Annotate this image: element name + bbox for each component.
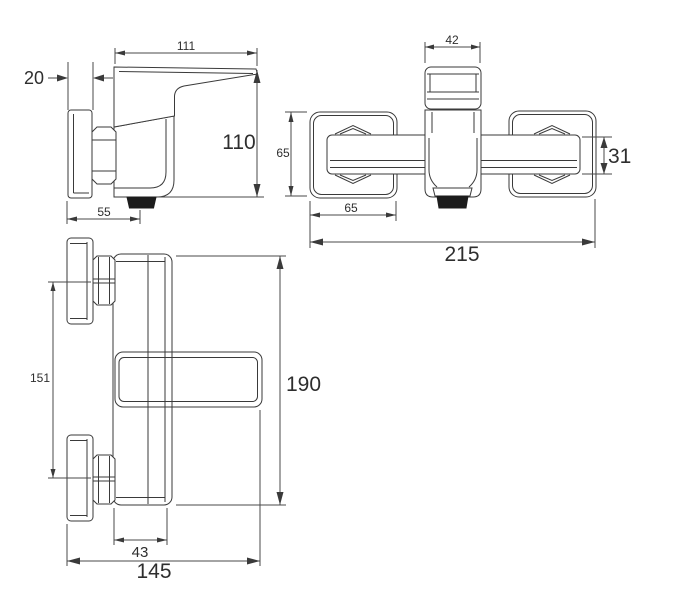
left-cone-lower	[335, 175, 371, 184]
dim-front-total-width-label: 215	[444, 243, 479, 266]
dim-front-escutcheon-height: 65	[276, 112, 307, 196]
side-hex-nut	[92, 127, 116, 184]
dim-plan-connection-spacing: 151	[30, 282, 91, 478]
front-outlet-collar	[433, 188, 472, 196]
dim-side-top-width-label: 111	[177, 39, 196, 53]
dim-front-escutcheon-width: 65	[310, 201, 396, 221]
dim-plan-total-length-label: 190	[286, 373, 321, 396]
dim-plan-body-width: 43	[114, 508, 167, 561]
mixer-dimensional-drawing: 111 20 110 55	[0, 0, 682, 600]
dim-side-plate-thickness-label: 20	[24, 68, 44, 88]
side-outlet-spout	[127, 197, 156, 208]
dim-side-base-depth-label: 55	[97, 205, 111, 219]
dim-plan-body-width-label: 43	[132, 544, 149, 561]
left-cone-upper	[335, 126, 371, 135]
dim-plan-connection-spacing-label: 151	[30, 371, 50, 385]
dim-plan-total-length: 190	[176, 256, 321, 505]
side-view: 111 20 110 55	[24, 39, 264, 224]
right-cone-lower	[534, 175, 570, 184]
dim-front-handle-width: 42	[425, 33, 480, 63]
dim-side-top-width: 111	[115, 39, 257, 66]
front-outlet-spout	[437, 196, 468, 208]
side-wall-plate-bevel	[74, 114, 90, 193]
dim-side-plate-thickness: 20	[24, 62, 113, 110]
front-view: 42 65 31 65 215	[276, 33, 631, 266]
plan-bottom-hex-nut	[93, 455, 115, 504]
plan-top-wall-plate-bevel	[70, 242, 87, 320]
dim-plan-total-projection-label: 145	[136, 560, 171, 583]
side-lever-handle	[114, 67, 258, 127]
dim-front-body-depth: 31	[582, 137, 631, 174]
right-cone-upper	[534, 126, 570, 135]
dim-front-handle-width-label: 42	[445, 33, 459, 47]
dim-front-escutcheon-height-label: 65	[276, 146, 290, 160]
technical-drawing-canvas: 111 20 110 55	[0, 0, 682, 600]
side-wall-plate	[68, 110, 92, 198]
plan-body	[113, 254, 172, 505]
dim-front-body-depth-label: 31	[608, 145, 631, 168]
plan-top-wall-plate	[67, 238, 93, 324]
dim-front-escutcheon-width-label: 65	[344, 201, 358, 215]
dim-side-height-label: 110	[222, 131, 255, 154]
side-body	[114, 116, 174, 197]
plan-top-hex-nut	[93, 256, 115, 305]
front-handle-head	[425, 67, 481, 109]
plan-view: 151 190 43 145	[30, 238, 321, 583]
